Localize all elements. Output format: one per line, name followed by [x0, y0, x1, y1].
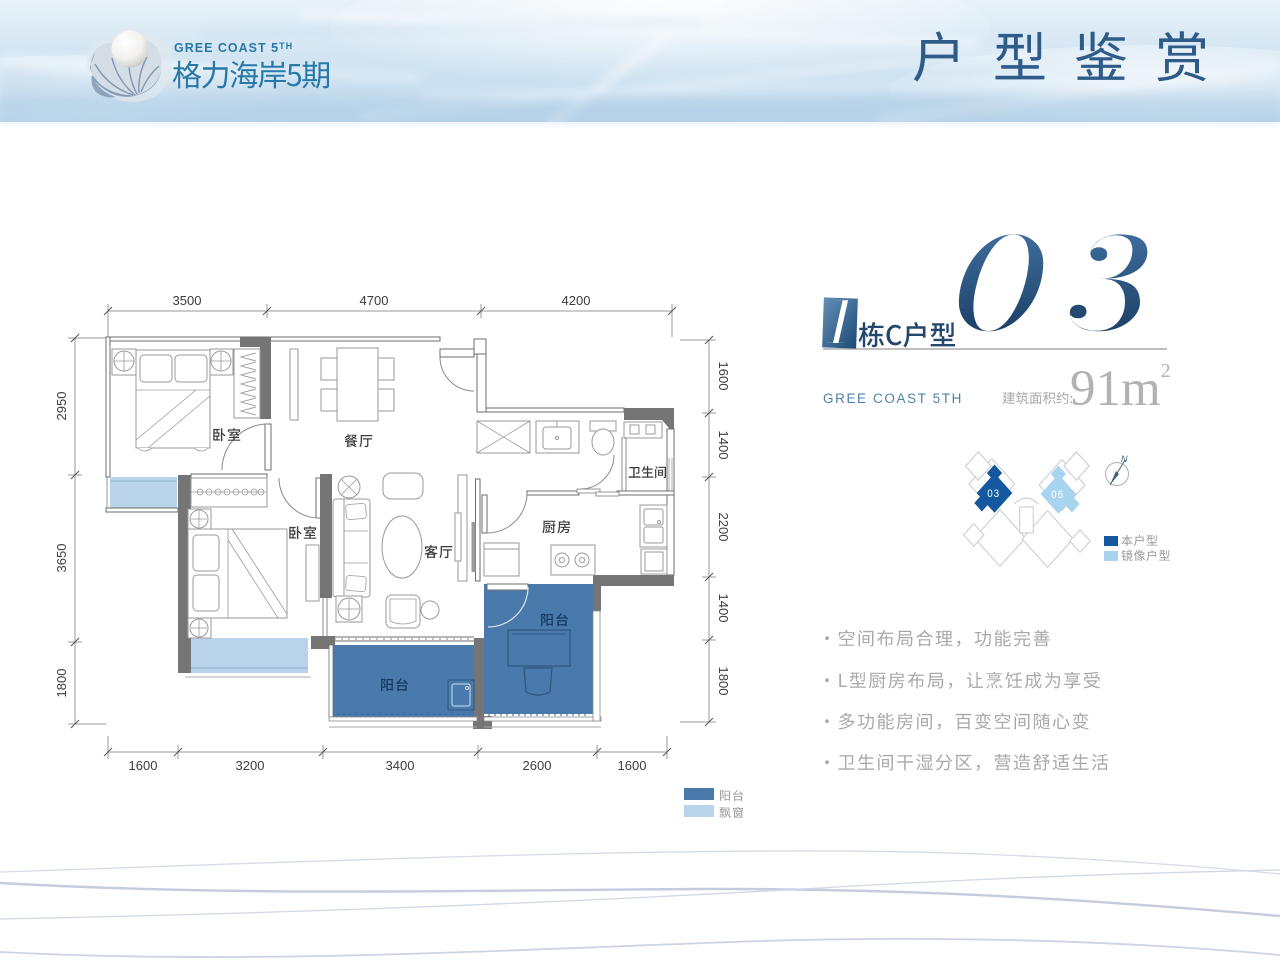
svg-text:GREE COAST 5TH: GREE COAST 5TH — [823, 391, 963, 406]
svg-text:03: 03 — [987, 489, 1000, 501]
svg-text:GREE COAST 5TH: GREE COAST 5TH — [174, 41, 293, 55]
svg-text:2600: 2600 — [523, 758, 552, 773]
svg-text:3650: 3650 — [54, 544, 69, 573]
svg-text:3500: 3500 — [173, 293, 202, 308]
svg-text:1600: 1600 — [716, 362, 731, 391]
svg-text:4200: 4200 — [562, 293, 591, 308]
svg-text:1800: 1800 — [54, 669, 69, 698]
svg-text:91m2: 91m2 — [1070, 360, 1171, 417]
svg-text:06: 06 — [1051, 490, 1064, 502]
svg-text:3200: 3200 — [236, 758, 265, 773]
svg-text:4700: 4700 — [360, 293, 389, 308]
svg-text:1600: 1600 — [618, 758, 647, 773]
svg-text:2200: 2200 — [716, 513, 731, 542]
svg-text:1400: 1400 — [716, 594, 731, 623]
svg-text:2950: 2950 — [54, 392, 69, 421]
svg-text:1400: 1400 — [716, 431, 731, 460]
svg-text:N: N — [1121, 454, 1128, 464]
svg-text:1600: 1600 — [129, 758, 158, 773]
svg-text:1800: 1800 — [716, 667, 731, 696]
svg-text:3400: 3400 — [386, 758, 415, 773]
